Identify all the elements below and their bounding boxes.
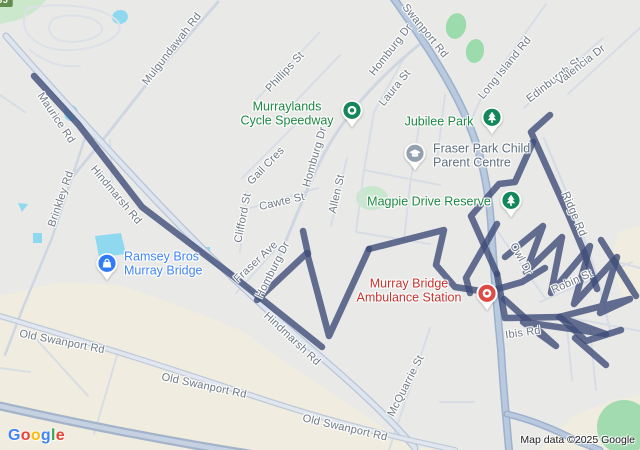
- map-graphics: [0, 0, 640, 450]
- google-logo-letter: G: [8, 427, 21, 444]
- map-attribution: Map data ©2025 Google: [520, 434, 635, 446]
- route-shield-335: 335: [0, 0, 12, 7]
- google-logo-letter: e: [56, 427, 65, 444]
- map-canvas[interactable]: Mulgundawah RdSwanport RdMaurice RdHindm…: [0, 0, 640, 450]
- google-logo-letter: o: [21, 427, 31, 444]
- google-logo-letter: g: [41, 427, 51, 444]
- google-logo[interactable]: Google: [8, 427, 65, 445]
- google-logo-letter: o: [31, 427, 41, 444]
